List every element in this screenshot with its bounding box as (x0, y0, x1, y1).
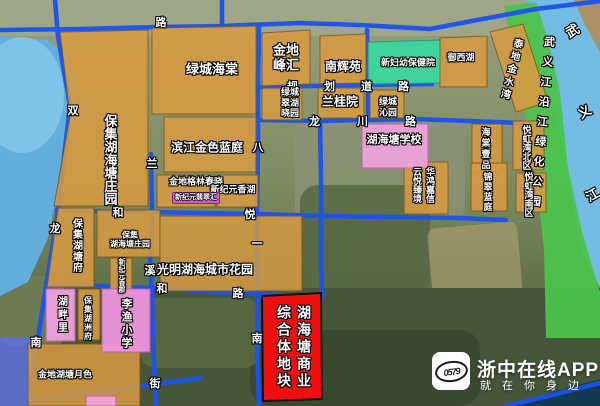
app-logo-icon: 0579 (432, 352, 470, 390)
label-baoji-hutangfu: 保集湖塘府 (69, 218, 84, 273)
road-label-xi: 溪 (145, 262, 156, 278)
label-huahong-jiaxin: 华鸿嘉信 (423, 167, 436, 215)
label-baoji-zhuangyuan-big: 保集湖海塘庄园 (101, 114, 120, 205)
label-baoji-small: 保集 湖海塘庄园 (110, 231, 150, 250)
label-jindi-fenghui-line2: 峰汇 (273, 58, 299, 73)
parcel-pink-sliver (86, 396, 116, 406)
label-yuehongwan-nan: 悦虹湾南区 (523, 172, 536, 217)
label-jindi-fenghui-line1: 金地 (273, 43, 299, 58)
label-hupanli: 湖畔里 (54, 296, 69, 335)
app-logo-oval: 0579 (433, 358, 469, 383)
road-label-yue: 悦 (245, 206, 256, 222)
label-cuihu-xiaoyuan: 绿城 翠湖 晓园 (281, 87, 299, 119)
label-baoji-huzhoufu: 保集湖洲府 (83, 296, 94, 341)
label-huhaitang-school: 湖海塘学校 (367, 131, 422, 147)
label-haitang-yipin: 海棠壹品 (480, 127, 493, 171)
road-label-he-west: 和 (113, 204, 124, 220)
parcel-guangming-huayuan (160, 216, 302, 291)
label-xinjiyuan-xiangjun: 新纪元香郡 (116, 258, 126, 293)
label-lvcheng-haitang: 绿城海棠 (186, 59, 238, 78)
label-xinjiyuan-feicuihui: 新纪元翡翠汇 (172, 192, 220, 204)
road-label-guihua-daolu: 规划道路 (287, 78, 435, 94)
label-baoji-small-line2: 湖海塘庄园 (110, 240, 150, 249)
label-jincui-lanting: 锦翠蓝庭 (482, 172, 495, 212)
road-label-jie: 街 (150, 375, 161, 391)
label-cuihu-line1: 绿城 (281, 87, 299, 98)
label-xinfuyou: 新妇幼保健院 (381, 56, 435, 69)
label-plot-col-left: 综合体地块 (274, 305, 294, 397)
road-label-he-south: 和 (157, 280, 168, 296)
label-yunyue-huahong: 华鸿嘉信 云悦臻境 (410, 167, 436, 215)
label-highlight-plot: 湖海塘商业 综合体地块 (274, 305, 314, 397)
label-cuihu-line3: 晓园 (281, 108, 299, 119)
road-label-long-west: 龙 (50, 220, 61, 236)
label-guangming-huayuan: 光明湖海城市花园 (157, 261, 253, 278)
label-cuihu-line2: 翠湖 (281, 98, 299, 109)
label-yunyue-zhenjing: 云悦臻境 (410, 167, 423, 215)
road-label-lu-south: 路 (233, 285, 244, 301)
label-yuxihu: 御西湖 (447, 51, 474, 64)
road-label-ba: 八 (253, 139, 264, 155)
watermark-tagline: 就在你身边 (480, 377, 590, 393)
label-binjiang-lanting: 滨江金色蓝庭 (171, 139, 243, 156)
label-qinyuan: 绿城 沁园 (379, 96, 397, 117)
label-liyu-xiaoxue: 李渔小学 (118, 298, 134, 350)
label-yuehongwan-bei: 悦虹湾北区 (521, 125, 534, 170)
label-nanhuiyuan: 南辉苑 (325, 58, 361, 75)
label-languiyuan: 兰桂院 (322, 93, 358, 110)
app-logo-text: 0579 (442, 365, 459, 377)
road-label-yi: 一 (252, 235, 263, 251)
label-qinyuan-line1: 绿城 (379, 96, 397, 107)
label-jindi-yuese: 金地湖塘月色 (38, 368, 92, 381)
road-label-nan-west: 南 (31, 334, 42, 350)
road-label-lan: 兰 (147, 155, 158, 171)
road-label-shuang: 双 (68, 102, 79, 118)
road-label-nan-east: 南 (252, 330, 263, 346)
label-plot-col-right: 湖海塘商业 (294, 305, 314, 397)
label-qinyuan-line2: 沁园 (379, 107, 397, 118)
road-label-lu-top: 路 (156, 14, 167, 30)
label-jindi-fenghui: 金地 峰汇 (273, 43, 299, 74)
satellite-map: 路 双 龙 南 兰 溪 街 八 一 南 规划道路 龙川路 和 悦 和 路 武 义… (0, 0, 600, 406)
